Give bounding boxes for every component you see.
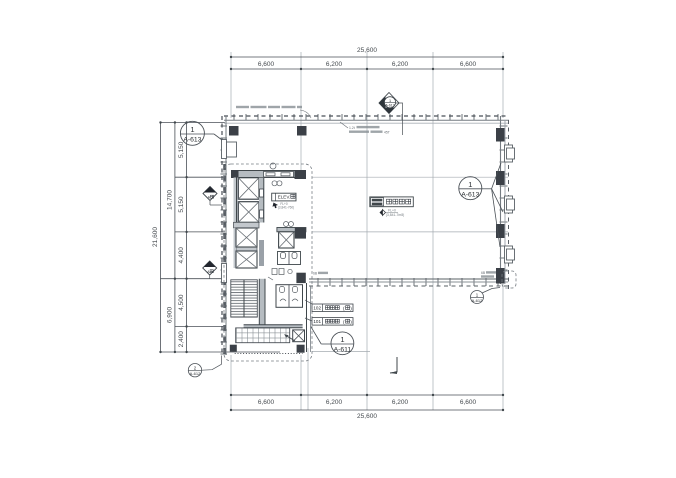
svg-text:6,200: 6,200: [392, 399, 409, 406]
svg-text:102: 102: [313, 306, 321, 311]
svg-text:6,200: 6,200: [392, 61, 409, 68]
svg-text:4,400: 4,400: [178, 247, 185, 264]
svg-text:6B: 6B: [313, 272, 318, 276]
svg-text:A-613: A-613: [183, 137, 201, 144]
svg-text:6,600: 6,600: [460, 61, 477, 68]
svg-text:45T: 45T: [384, 131, 390, 135]
svg-text:6,200: 6,200: [326, 61, 343, 68]
svg-text:(3,841-760): (3,841-760): [278, 206, 294, 210]
svg-text:1: 1: [389, 99, 391, 103]
svg-text:5,150: 5,150: [178, 141, 185, 158]
svg-text:(3,841-7m8): (3,841-7m8): [386, 213, 404, 217]
svg-text:6,600: 6,600: [460, 399, 477, 406]
svg-text:1: 1: [340, 335, 344, 344]
svg-text:1: 1: [190, 125, 194, 134]
svg-text:14,700: 14,700: [167, 190, 174, 210]
svg-text:A-612: A-612: [385, 104, 394, 108]
svg-text:101: 101: [313, 319, 321, 324]
svg-text:25,600: 25,600: [357, 413, 377, 420]
svg-text:A-612: A-612: [472, 298, 483, 303]
svg-text:A-611: A-611: [334, 347, 352, 354]
svg-text:A-612: A-612: [190, 371, 201, 376]
svg-text:21,600: 21,600: [152, 227, 159, 247]
svg-text:1.2t: 1.2t: [349, 126, 355, 130]
svg-text:6,900: 6,900: [167, 306, 174, 323]
svg-text:5,150: 5,150: [178, 196, 185, 213]
svg-text:2,400: 2,400: [178, 331, 185, 348]
svg-text:6,600: 6,600: [258, 61, 275, 68]
svg-text:25,600: 25,600: [357, 47, 377, 54]
svg-text:6B: 6B: [481, 271, 486, 275]
svg-text:1: 1: [468, 180, 472, 189]
svg-text:4,500: 4,500: [178, 294, 185, 311]
svg-text:6,600: 6,600: [258, 399, 275, 406]
svg-text:6,200: 6,200: [326, 399, 343, 406]
svg-text:ELEV.: ELEV.: [278, 195, 291, 200]
svg-text:A-613: A-613: [461, 191, 479, 198]
